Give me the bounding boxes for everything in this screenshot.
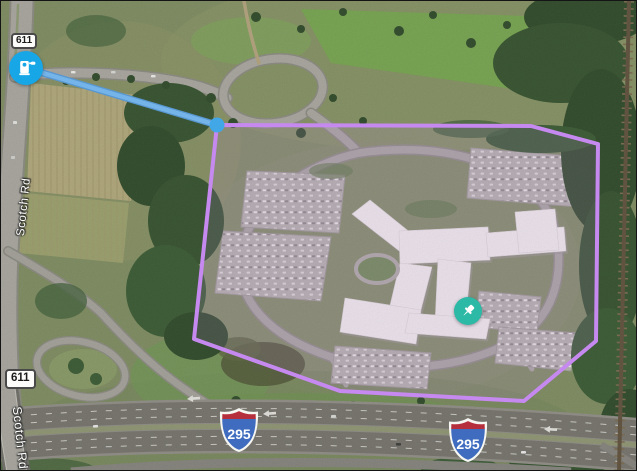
ev-charging-icon <box>14 56 38 80</box>
interstate-295-shield-left: 295 <box>219 407 259 453</box>
satellite-map[interactable] <box>1 1 637 471</box>
selection-polygon[interactable] <box>194 125 598 401</box>
pinned-place-marker[interactable] <box>454 297 482 325</box>
svg-text:295: 295 <box>456 436 480 452</box>
pushpin-icon <box>458 301 478 321</box>
route-vertex-handle[interactable] <box>210 118 225 133</box>
ev-charging-marker[interactable] <box>9 51 43 85</box>
interstate-295-shield-right: 295 <box>448 417 488 463</box>
svg-text:295: 295 <box>227 426 251 442</box>
route-611-shield-top: 611 <box>11 33 37 49</box>
map-viewport[interactable]: 611 611 Scotch Rd Scotch Rd 295 295 <box>0 0 637 471</box>
route-611-shield-bottom: 611 <box>5 369 36 389</box>
